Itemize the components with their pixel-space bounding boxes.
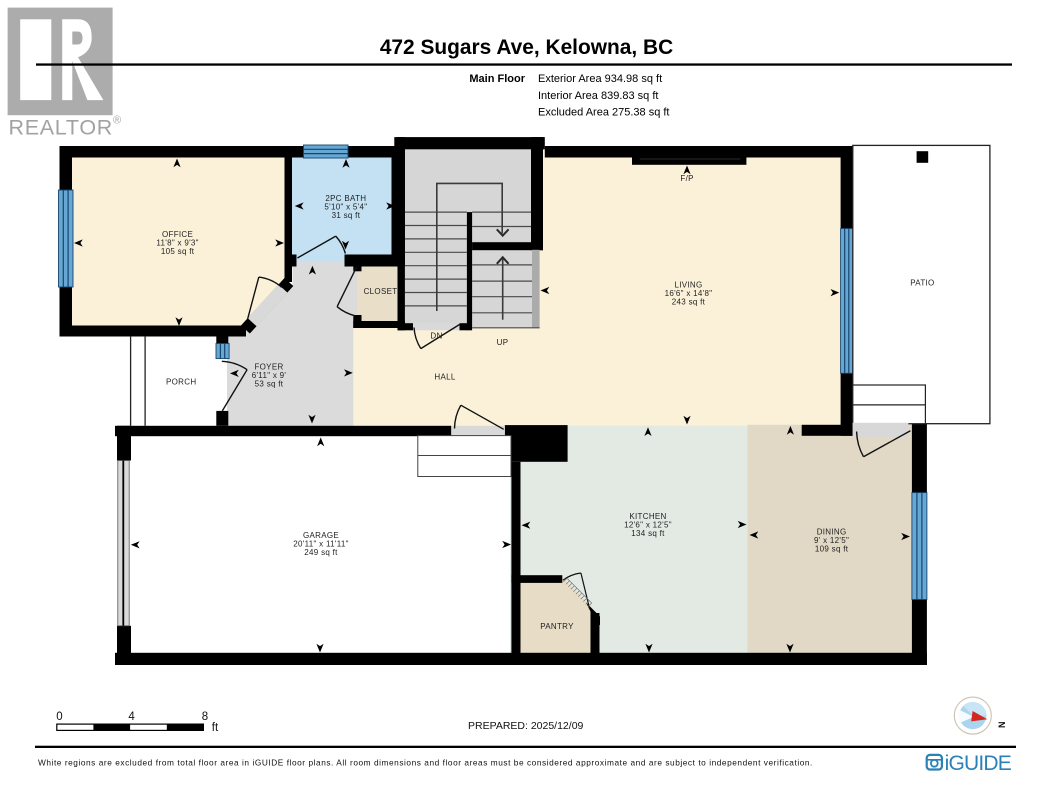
svg-text:105 sq ft: 105 sq ft xyxy=(161,247,195,256)
svg-text:4: 4 xyxy=(128,711,135,723)
svg-text:iGUIDE: iGUIDE xyxy=(945,752,1012,775)
svg-text:134 sq ft: 134 sq ft xyxy=(631,529,665,538)
svg-text:F/P: F/P xyxy=(680,174,693,183)
svg-text:N: N xyxy=(997,722,1007,729)
svg-text:109 sq ft: 109 sq ft xyxy=(815,545,849,554)
svg-text:31 sq ft: 31 sq ft xyxy=(332,211,361,220)
svg-text:PREPARED: 2025/12/09: PREPARED: 2025/12/09 xyxy=(468,720,584,732)
svg-text:REALTOR: REALTOR xyxy=(9,116,113,140)
svg-text:472 Sugars Ave, Kelowna, BC: 472 Sugars Ave, Kelowna, BC xyxy=(380,36,673,59)
svg-text:White regions are excluded fro: White regions are excluded from total fl… xyxy=(38,758,813,768)
svg-text:Exterior Area 934.98 sq ft: Exterior Area 934.98 sq ft xyxy=(538,73,662,85)
svg-text:ft: ft xyxy=(212,722,219,734)
svg-text:8: 8 xyxy=(202,711,208,723)
svg-text:249 sq ft: 249 sq ft xyxy=(304,548,338,557)
svg-text:Excluded Area 275.38 sq ft: Excluded Area 275.38 sq ft xyxy=(538,107,669,119)
svg-text:53 sq ft: 53 sq ft xyxy=(255,379,284,388)
svg-text:0: 0 xyxy=(56,711,62,723)
svg-text:UP: UP xyxy=(497,338,509,347)
svg-text:CLOSET: CLOSET xyxy=(364,287,398,296)
svg-text:HALL: HALL xyxy=(434,373,455,382)
svg-text:PORCH: PORCH xyxy=(166,378,196,387)
svg-text:Main Floor: Main Floor xyxy=(469,73,525,85)
svg-text:PANTRY: PANTRY xyxy=(540,622,574,631)
svg-text:DN: DN xyxy=(430,332,442,341)
svg-text:®: ® xyxy=(113,115,121,127)
svg-text:Interior Area 839.83 sq ft: Interior Area 839.83 sq ft xyxy=(538,90,658,102)
svg-text:PATIO: PATIO xyxy=(910,279,934,288)
svg-text:243 sq ft: 243 sq ft xyxy=(672,298,706,307)
